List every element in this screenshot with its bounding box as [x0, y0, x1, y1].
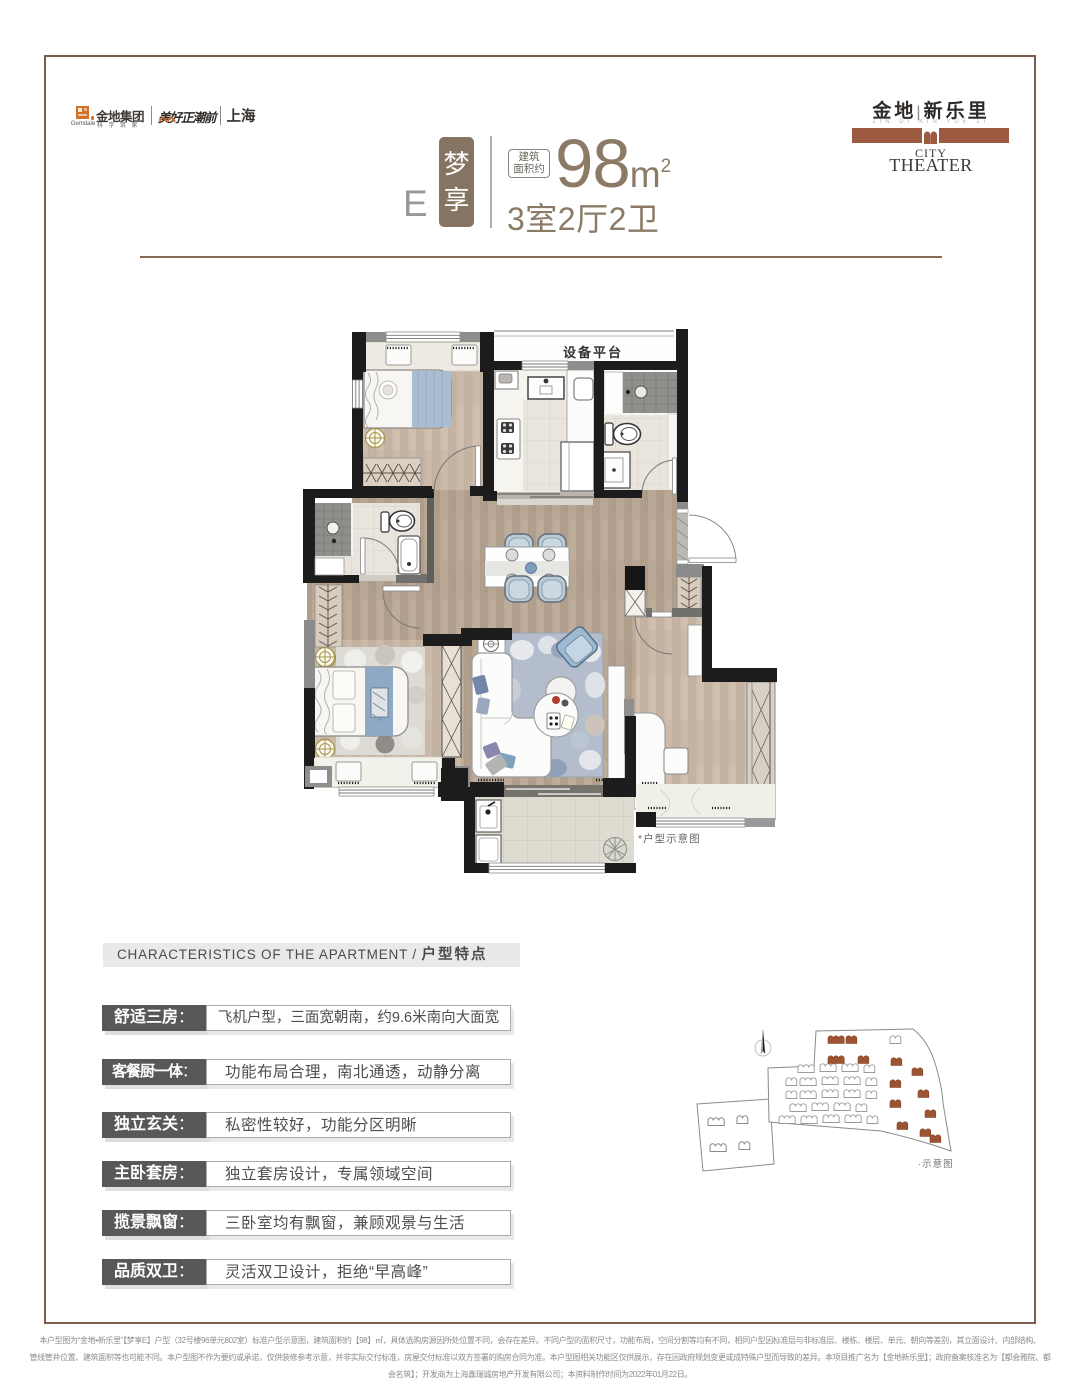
svg-text:·示意图: ·示意图 [918, 1158, 954, 1170]
svg-text:*户型示意图: *户型示意图 [638, 832, 701, 845]
svg-text:设备平台: 设备平台 [563, 345, 623, 360]
